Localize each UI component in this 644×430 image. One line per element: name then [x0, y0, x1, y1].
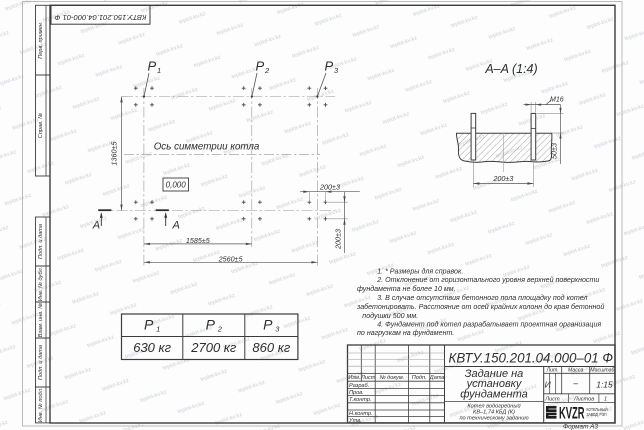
svg-text:50±3: 50±3	[550, 143, 559, 159]
svg-text:200±3: 200±3	[492, 174, 513, 183]
svg-text:2: 2	[264, 66, 270, 75]
svg-text:P: P	[144, 317, 154, 333]
svg-text:Подп. и дата: Подп. и дата	[38, 224, 44, 259]
svg-text:Инв. № подл.: Инв. № подл.	[38, 388, 44, 423]
svg-text:Разраб.: Разраб.	[349, 383, 369, 389]
svg-text:КВТУ.150.201.04.000-01 Ф: КВТУ.150.201.04.000-01 Ф	[55, 13, 147, 22]
svg-text:Лист: Лист	[544, 396, 560, 402]
svg-text:P: P	[325, 59, 334, 74]
svg-text:860 кг: 860 кг	[252, 340, 290, 355]
svg-text:4. Фундамент под котел раз: 4. Фундамент под котел разрабатывает про…	[377, 320, 601, 328]
svg-text:1: 1	[156, 325, 160, 334]
svg-text:A: A	[92, 220, 100, 232]
svg-text:–: –	[572, 379, 578, 388]
svg-text:Масштаб: Масштаб	[590, 368, 615, 374]
svg-text:забетонировать. Расстояние о: забетонировать. Расстояние от осей крайн…	[356, 303, 604, 311]
svg-text:Взам. инв. №: Взам. инв. №	[38, 303, 44, 338]
svg-text:200±3: 200±3	[334, 229, 343, 250]
svg-text:P: P	[263, 317, 273, 333]
svg-text:P: P	[206, 317, 216, 333]
svg-text:М16: М16	[550, 97, 564, 104]
svg-text:1:15: 1:15	[596, 380, 613, 390]
svg-text:2560±5: 2560±5	[218, 254, 244, 263]
svg-text:Пров.: Пров.	[349, 390, 364, 396]
svg-text:фундамента не более 10 мм.: фундамента не более 10 мм.	[357, 285, 456, 293]
svg-text:Листов: Листов	[573, 396, 594, 402]
svg-text:3. В случае отсутствия бет: 3. В случае отсутствия бетонного пола пл…	[377, 294, 587, 302]
svg-text:Перв. примен.: Перв. примен.	[38, 22, 44, 59]
svg-text:Подп.: Подп.	[412, 375, 427, 381]
svg-text:1360±5: 1360±5	[110, 141, 119, 166]
svg-text:P: P	[148, 59, 157, 74]
svg-text:1585±5: 1585±5	[186, 236, 211, 245]
svg-text:200±3: 200±3	[319, 182, 340, 191]
svg-text:2. Отклонение от горизонтал: 2. Отклонение от горизонтального уровня …	[376, 276, 599, 284]
svg-text:по нагрузкам на фундамент.: по нагрузкам на фундамент.	[357, 329, 454, 337]
svg-text:A–A (1:4): A–A (1:4)	[484, 62, 537, 76]
svg-text:И: И	[545, 380, 552, 390]
svg-text:по техническому заданию: по техническому заданию	[459, 415, 529, 421]
svg-text:Лист: Лист	[360, 375, 376, 381]
svg-text:ЗАВОД, РЭП: ЗАВОД, РЭП	[587, 412, 607, 418]
svg-text:Т.контр.: Т.контр.	[349, 397, 372, 403]
svg-text:Н.контр.: Н.контр.	[349, 411, 373, 417]
svg-text:Формат А3: Формат А3	[563, 423, 598, 430]
svg-text:630 кг: 630 кг	[133, 340, 171, 355]
svg-text:P: P	[256, 59, 265, 74]
svg-text:Лит.: Лит.	[546, 368, 559, 374]
svg-text:2: 2	[217, 325, 223, 334]
svg-text:Утв.: Утв.	[348, 418, 362, 424]
svg-text:подушки 500 мм.: подушки 500 мм.	[362, 312, 418, 320]
svg-text:0,000: 0,000	[166, 181, 187, 190]
svg-text:1: 1	[157, 66, 161, 75]
svg-text:фундамента: фундамента	[460, 389, 528, 401]
svg-text:Ось симметрии котла: Ось симметрии котла	[154, 141, 260, 152]
svg-text:1: 1	[604, 396, 607, 402]
svg-text:1. * Размеры для справок.: 1. * Размеры для справок.	[377, 267, 463, 275]
svg-text:Справ. №: Справ. №	[38, 113, 44, 138]
svg-text:Масса: Масса	[568, 368, 583, 374]
svg-text:Котел водогрейный: Котел водогрейный	[467, 402, 520, 409]
svg-text:Дата: Дата	[429, 375, 445, 381]
svg-text:A: A	[172, 220, 180, 232]
svg-text:№ докум.: № докум.	[380, 375, 405, 381]
svg-text:2700 кг: 2700 кг	[190, 340, 237, 355]
svg-text:Подп. и дата: Подп. и дата	[38, 345, 44, 380]
svg-text:Инв. № дубл.: Инв. № дубл.	[38, 267, 44, 301]
svg-text:KVZR: KVZR	[559, 405, 585, 423]
svg-text:Изм.: Изм.	[348, 375, 360, 381]
svg-text:КВТУ.150.201.04.000–01 Ф: КВТУ.150.201.04.000–01 Ф	[449, 350, 614, 366]
